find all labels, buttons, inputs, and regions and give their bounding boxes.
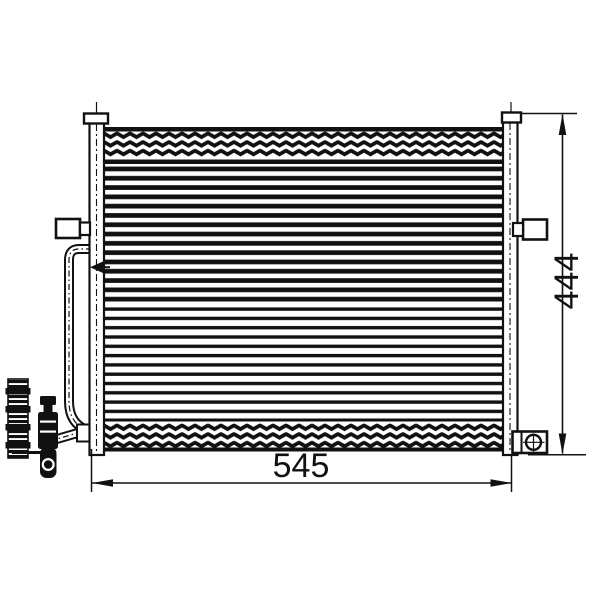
height-dimension: 444 [520, 114, 586, 455]
width-arrow-right-icon [491, 479, 512, 487]
top-fin-band [104, 132, 502, 158]
tube-stripes-lower [104, 306, 502, 416]
width-arrow-left-icon [92, 479, 113, 487]
right-mounting-bracket [513, 220, 547, 240]
bottom-right-mounting-bracket [513, 432, 548, 454]
receiver-drier-fitting [38, 396, 58, 478]
height-arrow-down-icon [559, 434, 567, 455]
drawing-svg: 545 444 [0, 0, 600, 600]
width-dimension-label: 545 [273, 447, 330, 485]
tube-stripes-upper [104, 166, 502, 306]
left-header-tube [90, 122, 105, 455]
core-separator-line [104, 160, 502, 165]
bottom-fin-band [104, 424, 502, 448]
core-lower-separator-line [104, 419, 502, 422]
height-arrow-up-icon [559, 114, 567, 135]
right-header-tube [503, 121, 518, 455]
core-top-edge [104, 127, 502, 132]
condenser-technical-drawing: 545 444 [0, 0, 600, 600]
left-header-cap [84, 102, 108, 124]
left-mounting-bracket [56, 219, 90, 238]
right-header-cap [502, 102, 521, 123]
width-dimension: 545 [92, 447, 512, 492]
height-dimension-label: 444 [548, 253, 586, 310]
pressure-switch-fitting [6, 379, 43, 458]
condenser-core [104, 127, 502, 452]
